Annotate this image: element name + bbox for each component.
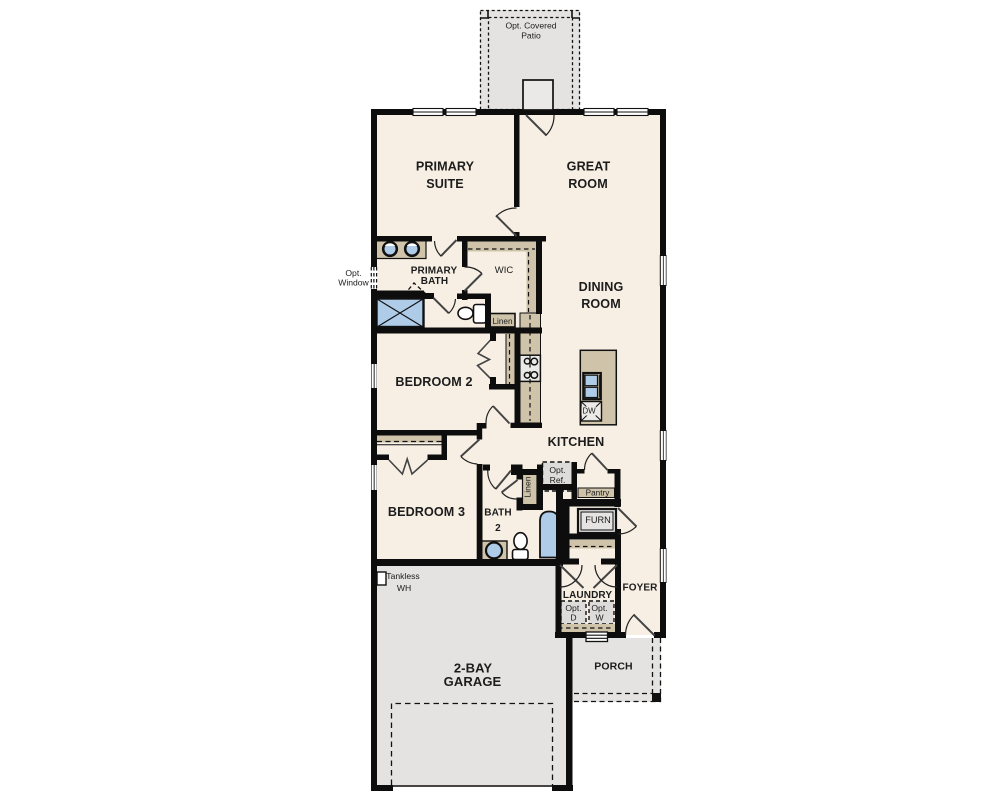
svg-text:BEDROOM 2: BEDROOM 2 xyxy=(395,375,472,389)
svg-text:Opt.: Opt. xyxy=(565,603,581,613)
svg-text:PRIMARY: PRIMARY xyxy=(416,160,475,174)
svg-text:GREAT: GREAT xyxy=(567,160,611,174)
svg-text:PORCH: PORCH xyxy=(594,661,632,673)
svg-text:Opt.: Opt. xyxy=(591,603,607,613)
svg-text:Ref.: Ref. xyxy=(550,475,566,485)
svg-text:DW: DW xyxy=(582,407,596,416)
svg-text:Opt. Covered: Opt. Covered xyxy=(505,21,556,31)
svg-text:GARAGE: GARAGE xyxy=(444,674,502,689)
svg-text:SUITE: SUITE xyxy=(426,177,464,191)
svg-text:Window: Window xyxy=(338,278,369,288)
svg-text:LAUNDRY: LAUNDRY xyxy=(563,590,612,601)
svg-text:Linen: Linen xyxy=(492,317,512,326)
svg-text:Linen: Linen xyxy=(523,476,533,497)
svg-text:PRIMARY: PRIMARY xyxy=(411,266,458,277)
svg-text:BEDROOM 3: BEDROOM 3 xyxy=(388,505,465,519)
svg-text:Opt.: Opt. xyxy=(549,465,565,475)
svg-text:KITCHEN: KITCHEN xyxy=(548,435,605,449)
svg-text:ROOM: ROOM xyxy=(568,177,608,191)
svg-text:BATH: BATH xyxy=(421,276,448,287)
svg-text:ROOM: ROOM xyxy=(581,297,621,311)
svg-text:W: W xyxy=(595,613,604,623)
svg-text:BATH: BATH xyxy=(484,508,511,519)
svg-text:Patio: Patio xyxy=(521,31,541,41)
svg-text:2: 2 xyxy=(495,523,501,534)
svg-text:Pantry: Pantry xyxy=(586,489,611,498)
svg-text:D: D xyxy=(570,613,576,623)
svg-text:DINING: DINING xyxy=(579,280,624,294)
svg-text:Tankless: Tankless xyxy=(386,571,419,581)
svg-text:FURN: FURN xyxy=(585,515,611,525)
svg-text:WIC: WIC xyxy=(495,265,514,276)
svg-text:Opt.: Opt. xyxy=(345,268,361,278)
svg-text:FOYER: FOYER xyxy=(623,583,659,594)
svg-text:WH: WH xyxy=(397,583,411,593)
